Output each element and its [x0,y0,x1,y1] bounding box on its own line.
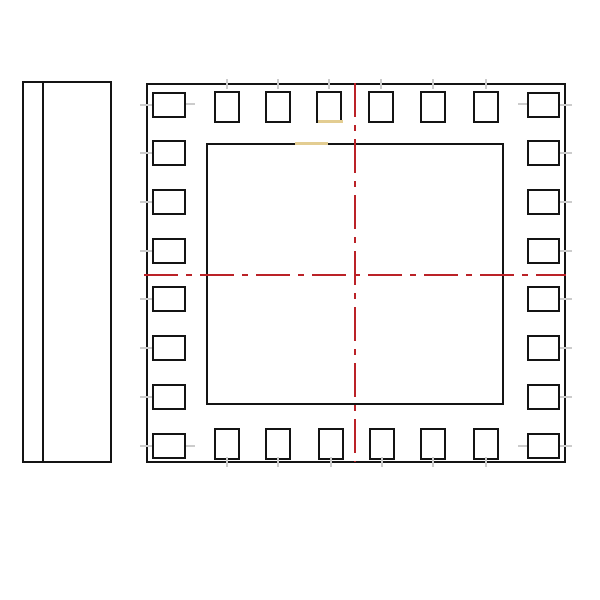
pad-bottom-3 [318,428,344,460]
lead-tick-left-1 [140,104,152,106]
lead-tick-left-5 [140,298,152,300]
pad-right-1 [527,92,560,118]
pad-top-6 [473,91,499,123]
lead-tick-right-1 [560,104,572,106]
lead-tick-bottom-1 [226,457,228,467]
pad-left-4 [152,238,186,264]
pad-left-3 [152,189,186,215]
lead-tick-top-6 [485,79,487,89]
pad-right-7 [527,384,560,410]
lead-tick-right-5 [560,298,572,300]
package-drawing-canvas [0,0,600,600]
lead-tick-bottom-5 [432,457,434,467]
lead-tick-left-2 [140,152,152,154]
highlight-segment-1 [318,120,343,123]
highlight-segment-2 [295,142,328,145]
pad-right-8 [527,433,560,459]
pad-right-4 [527,238,560,264]
lead-tick-top-4 [380,79,382,89]
lead-tick-right-3 [560,201,572,203]
lead-tick-top-3 [328,79,330,89]
pad-bottom-2 [265,428,291,460]
pad-right-3 [527,189,560,215]
pad-bottom-5 [420,428,446,460]
pad-top-3 [316,91,342,123]
lead-tick-left-7 [140,396,152,398]
pad-left-1 [152,92,186,118]
corner-flank-tick-2 [186,445,195,447]
lead-tick-bottom-3 [330,457,332,467]
pad-top-4 [368,91,394,123]
pad-left-5 [152,286,186,312]
lead-tick-right-2 [560,152,572,154]
pad-right-5 [527,286,560,312]
lead-tick-top-1 [226,79,228,89]
lead-tick-bottom-2 [277,457,279,467]
pad-left-2 [152,140,186,166]
corner-flank-tick-4 [518,445,527,447]
pad-left-8 [152,433,186,459]
side-view-lead-seam-line [42,83,44,461]
lead-tick-top-2 [277,79,279,89]
lead-tick-left-4 [140,250,152,252]
pad-bottom-6 [473,428,499,460]
pad-bottom-4 [369,428,395,460]
lead-tick-right-8 [560,445,572,447]
lead-tick-left-8 [140,445,152,447]
corner-flank-tick-1 [186,103,195,105]
pad-right-2 [527,140,560,166]
lead-tick-top-5 [432,79,434,89]
pad-right-6 [527,335,560,361]
pad-top-2 [265,91,291,123]
lead-tick-right-6 [560,347,572,349]
pad-top-5 [420,91,446,123]
lead-tick-left-6 [140,347,152,349]
lead-tick-bottom-6 [485,457,487,467]
lead-tick-bottom-4 [381,457,383,467]
pad-left-7 [152,384,186,410]
lead-tick-right-4 [560,250,572,252]
pad-top-1 [214,91,240,123]
centerline-vertical [354,83,356,462]
centerline-horizontal [144,274,566,276]
pad-bottom-1 [214,428,240,460]
package-side-view-outline [22,81,112,463]
pad-left-6 [152,335,186,361]
lead-tick-left-3 [140,201,152,203]
corner-flank-tick-3 [518,103,527,105]
lead-tick-right-7 [560,396,572,398]
